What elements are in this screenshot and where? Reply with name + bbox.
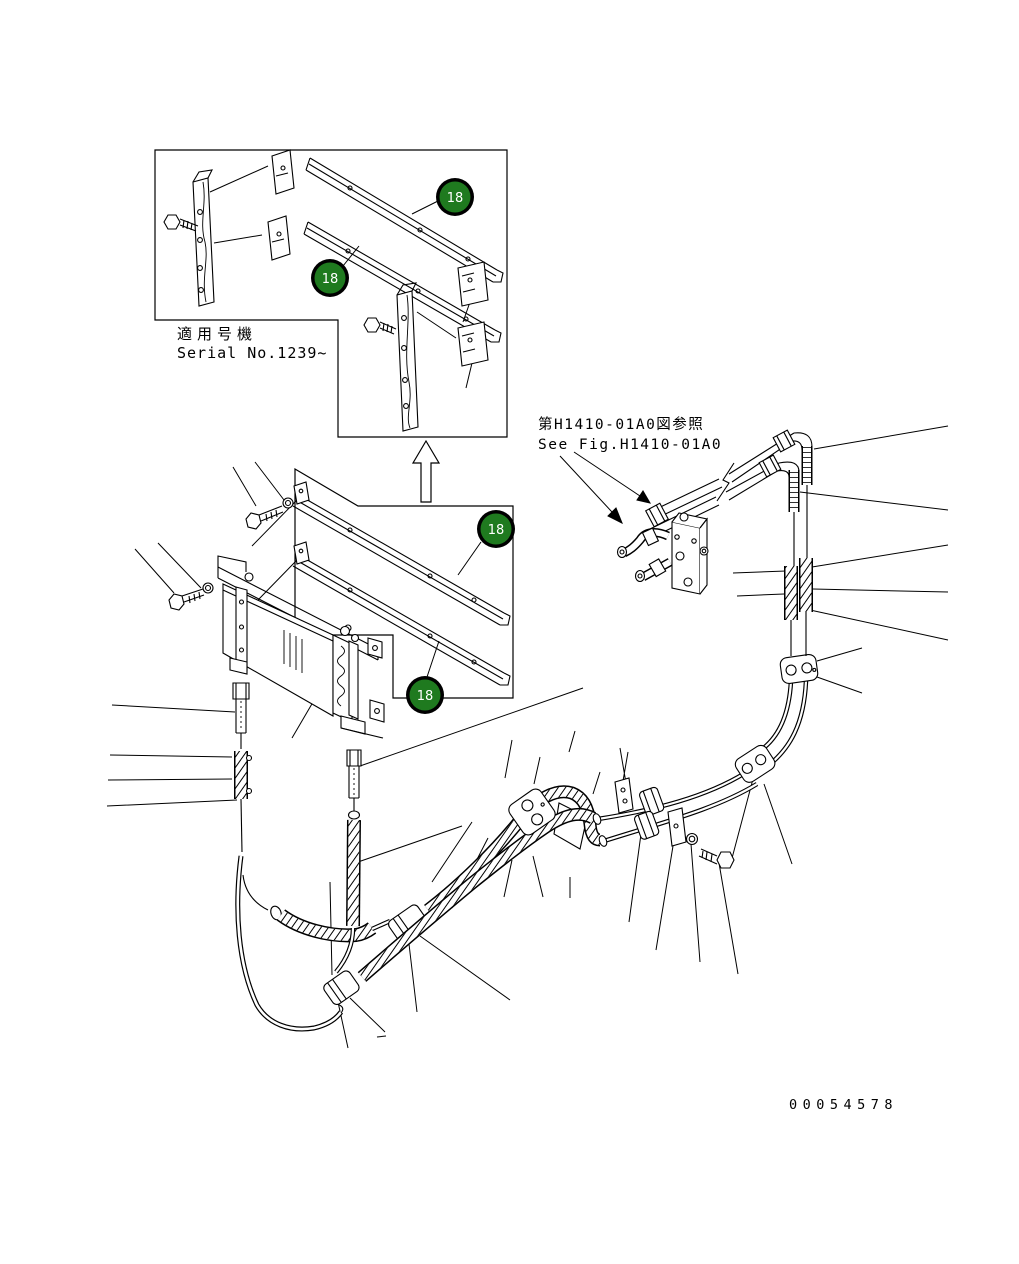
pipe-tube (794, 446, 807, 512)
drawing-number: 00054578 (789, 1097, 898, 1113)
callout-badge-18: 18 (436, 178, 474, 216)
callout-badge-18: 18 (311, 259, 349, 297)
badge-label: 18 (447, 191, 464, 206)
bolt-icon (246, 498, 293, 529)
small-bracket (615, 778, 633, 813)
callout-badge-18: 18 (477, 510, 515, 548)
clip-bracket (272, 150, 294, 194)
hose-fitting-left (233, 683, 249, 749)
bracket-plate-left (193, 170, 214, 306)
clip-bracket (268, 216, 290, 260)
pipe-clamp-block (779, 654, 818, 685)
clip-bracket (458, 262, 488, 306)
bolt-icon (169, 583, 213, 610)
long-hose (238, 856, 343, 1029)
valve-block (618, 513, 709, 594)
oil-cooler-assembly (169, 498, 384, 738)
hose-line (241, 799, 242, 852)
hose-coupler (322, 969, 361, 1006)
serial-note-jp: 適用号機 (177, 325, 257, 343)
spiral-guard-left (241, 751, 252, 799)
pipe-hex-fitting (773, 430, 795, 452)
pipe-hex-fitting (759, 455, 781, 477)
badge-label: 18 (417, 689, 434, 704)
pipe-hex-fitting (646, 503, 669, 526)
reference-note-en: See Fig.H1410-01A0 (538, 437, 722, 453)
parts-diagram-page: 適用号機 Serial No.1239~ (0, 0, 1019, 1264)
spiral-guard-right (353, 820, 354, 926)
badge-label: 18 (322, 272, 339, 287)
hose-fitting-right (347, 750, 361, 819)
spiral-guard-pipe (791, 558, 806, 620)
diagram-canvas: 適用号機 Serial No.1239~ (0, 0, 1019, 1264)
bolt-icon (364, 318, 396, 334)
reference-note-jp: 第H1410-01A0図参照 (538, 415, 704, 433)
bracket-plate-bottom (397, 283, 418, 431)
reference-note: 第H1410-01A0図参照 See Fig.H1410-01A0 (538, 415, 722, 523)
hose-line (243, 875, 268, 910)
serial-note: 適用号機 Serial No.1239~ (177, 325, 327, 362)
straight-fitting (636, 559, 671, 582)
clip-bracket (458, 322, 488, 366)
hose-run-center (362, 778, 633, 977)
badge-label: 18 (488, 523, 505, 538)
small-bracket (668, 808, 686, 846)
ring-clamp (633, 810, 659, 840)
callout-badge-18: 18 (406, 676, 444, 714)
bolt-icon (164, 215, 198, 231)
mounting-rail-lower-1 (293, 482, 510, 625)
up-arrow-icon (413, 441, 439, 502)
pipe-break (717, 463, 734, 501)
wrapped-hose-lower (362, 814, 593, 977)
reference-arrows (560, 452, 650, 523)
bolt-icon (699, 849, 734, 868)
elbow-fitting (618, 528, 669, 557)
serial-note-en: Serial No.1239~ (177, 344, 327, 362)
hose-assembly (233, 683, 430, 1029)
washer-icon (687, 834, 698, 845)
